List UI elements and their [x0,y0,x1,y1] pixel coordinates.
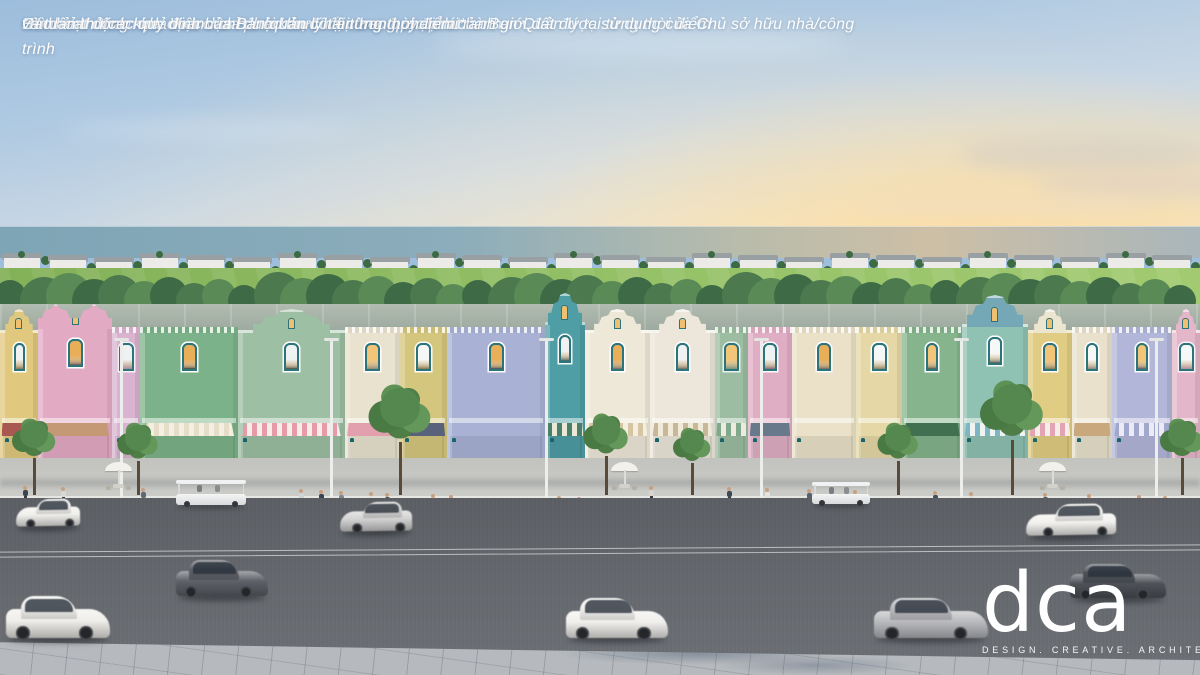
car-windshield [25,599,73,612]
shop-window [350,438,354,442]
window [611,343,625,371]
palm-tree [1122,251,1129,258]
cloud [860,196,1160,216]
tree-canopy [592,416,621,445]
gable-window [72,313,79,325]
shop-window [753,438,757,442]
car-wheel [637,627,650,640]
car [176,558,268,598]
sea-horizon [0,226,1200,258]
window [365,343,380,371]
gable [1176,309,1196,333]
car-cabin [189,560,239,580]
car [16,497,81,528]
sidewalk-tree [992,365,1032,495]
street-lamp-head [1149,338,1164,341]
shop-window [550,438,554,442]
gable [594,309,641,333]
sidewalk-tree [380,371,420,495]
facade-windows [452,343,540,421]
car-cabin [363,502,402,519]
street-lamp-pole [760,340,763,498]
sidewalk-tree [672,419,712,495]
cafe-table [1047,484,1058,488]
cornice [1112,327,1172,333]
buggy-post [243,483,245,494]
window [182,343,197,371]
sidewalk-tree [878,414,918,495]
shop-window [967,438,971,442]
tree-canopy [125,425,151,451]
car-wheel [395,523,405,533]
street-lamp-pole [330,340,333,498]
gable [5,309,32,333]
cafe-chair [632,486,637,490]
facade-windows [43,339,107,417]
facade-windows [655,343,710,421]
buggy-wheel [819,500,825,506]
car-cabin [1055,504,1104,522]
car-windshield [38,501,68,510]
gable [253,309,330,333]
buggy-wheel [232,501,238,507]
facade-windows [720,343,743,421]
tree-canopy [1168,421,1195,448]
car [1026,502,1117,538]
cornice [400,327,447,333]
cafe-chair [1040,486,1045,490]
car-windshield [585,600,632,613]
cornice [112,327,140,333]
fascia-band [1074,418,1110,423]
shop-window [1117,438,1121,442]
tree-trunk [1011,440,1014,495]
gable [1034,309,1066,333]
gable-window [288,318,295,329]
buggy-roof [176,480,246,484]
window [14,343,25,371]
gable-window [561,305,568,319]
car-windshield [193,562,236,574]
palm-tree [18,251,25,258]
awning [750,423,790,436]
awning [716,423,746,436]
cornice [715,327,748,333]
tree-canopy [992,384,1033,425]
shop-window [1077,438,1081,442]
cloud [960,138,1200,172]
gable-window [991,307,998,321]
window [1086,343,1098,371]
cornice [792,327,856,333]
car-cabin [890,598,952,620]
gable [659,309,706,333]
window [926,343,938,371]
street-lamp-head [754,338,769,341]
window [988,337,1002,365]
sidewalk-tree [14,409,54,495]
facade-windows [861,343,897,421]
tree-canopy [380,388,419,427]
car [566,596,668,640]
car-wheel [954,627,967,640]
street-lamp-head [954,338,969,341]
tree-trunk [897,461,900,496]
window [872,343,887,371]
tree-trunk [691,463,694,495]
sidewalk-tree [586,403,626,495]
dca-logo-wordmark: dca [982,570,1182,637]
facade-windows [753,343,787,421]
facade-windows [1117,343,1167,421]
window [1136,343,1148,371]
gable-window [1182,318,1189,329]
cornice [748,327,792,333]
buggy-passenger [844,487,849,494]
cornice [140,327,238,333]
gable-window [679,318,686,329]
dca-logo-tagline: DESIGN. CREATIVE. ARCHITECTURE [982,645,1182,655]
shop-window [5,438,9,442]
window [763,343,777,371]
buggy-passenger [197,485,202,492]
tree-trunk [1181,458,1184,495]
street-lamp-head [539,338,554,341]
street-lamp-head [324,338,339,341]
facade-windows [145,343,233,421]
shop-window [861,438,865,442]
window [1179,343,1194,371]
palm-tree [432,251,439,258]
dca-logo: dca DESIGN. CREATIVE. ARCHITECTURE [982,570,1182,655]
shop-window [1033,438,1037,442]
car-cabin [580,598,635,620]
shophouse-building [545,322,585,480]
window [817,343,830,371]
facade-windows [1077,343,1107,421]
street-lamp-pole [1155,340,1158,498]
architectural-render: *Hình ảnh tham khảo và chưa phải bản cuố… [0,0,1200,675]
cornice [1072,327,1112,333]
awning [242,423,340,436]
window [284,343,299,371]
palm-tree [708,251,715,258]
car-wheel [1043,527,1053,537]
tree-canopy [680,430,704,454]
palm-tree [156,251,163,258]
fascia-band [547,418,583,423]
cornice [856,327,902,333]
car-windshield [1057,506,1099,517]
window [416,343,431,371]
tree-canopy [885,425,911,451]
tree-canopy [20,421,47,448]
tree-trunk [399,442,402,495]
fascia-band [1030,418,1070,423]
disclaimer-line: và tuân thủ các quy định của Ban quản lý… [22,12,466,37]
shop-window [655,438,659,442]
car-wheel [79,626,93,640]
car-wheel [885,627,898,640]
street-lamp-head [114,338,129,341]
car-cabin [21,596,77,619]
gable-window [1046,318,1053,329]
golf-buggy [176,480,246,507]
buggy-post [178,483,180,494]
parasol-pole [1052,470,1054,484]
car-windshield [365,504,399,514]
cafe-chair [1060,486,1065,490]
palm-tree [984,251,991,258]
window [724,343,739,371]
street-lamp-pole [545,340,548,498]
facade-windows [550,335,580,413]
car-wheel [1097,526,1107,536]
gable-window [614,318,621,329]
car [340,500,413,533]
palm-tree [846,251,853,258]
fascia-band [240,418,343,423]
palm-tree [570,251,577,258]
tree-trunk [33,458,36,495]
sidewalk-tree [1162,409,1200,495]
tree-trunk [605,456,608,495]
shop-window [452,438,456,442]
buggy-wheel [857,500,863,506]
fascia-band [449,418,543,423]
sidewalk-tree [118,414,158,495]
fascia-band [750,418,790,423]
golf-buggy [812,482,870,506]
awning [547,423,584,436]
window [559,335,571,363]
window [489,343,504,371]
car-wheel [352,524,362,534]
cloud [60,120,360,138]
awning [1030,423,1070,436]
car [874,596,988,640]
window [676,343,690,371]
shop-window [797,438,801,442]
shop-window [243,438,247,442]
palm-tree [294,251,301,258]
car-cabin [36,499,71,515]
street-lamp-pole [960,340,963,498]
buggy-passenger [215,485,220,492]
shop-window [720,438,724,442]
cornice [902,327,962,333]
window [1043,343,1057,371]
cornice [447,327,545,333]
car-wheel [65,519,74,528]
facade-windows [907,343,957,421]
car [6,594,110,640]
car-windshield [895,600,948,613]
facade-windows [243,343,340,421]
fascia-band [717,418,746,423]
facade-windows [797,343,851,421]
awning [1074,423,1111,436]
facade-windows [1033,343,1067,421]
fascia-band [794,418,854,423]
cornice [345,327,400,333]
buggy-passenger [829,487,834,494]
buggy-roof [812,482,870,486]
cafe-chair [106,486,111,490]
gable-window [15,318,22,329]
window [68,339,83,367]
